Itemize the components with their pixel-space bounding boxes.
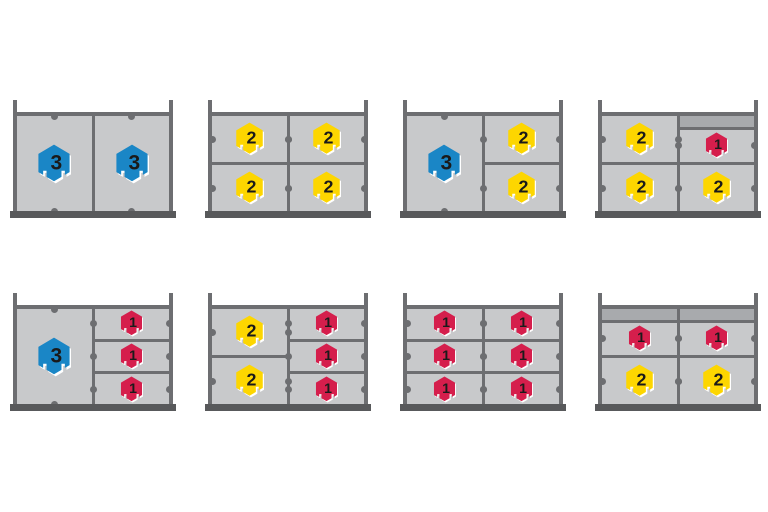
hex-token-icon: 1 (510, 310, 533, 337)
hex-token-icon: 3 (427, 144, 461, 184)
hex-token-icon: 1 (510, 343, 533, 370)
top-bar (403, 305, 563, 309)
token-number: 2 (246, 177, 256, 197)
hex-token-icon: 2 (507, 171, 536, 205)
token-red-1: 1 (510, 376, 533, 403)
token-yellow-2: 2 (702, 364, 731, 398)
token-red-1: 1 (315, 376, 338, 403)
peg (285, 185, 292, 192)
row-divider (680, 355, 755, 358)
shelf-six-red: 111111 (403, 293, 563, 411)
filler-band-line (602, 320, 677, 323)
top-bar (208, 305, 368, 309)
row-divider (290, 371, 365, 374)
hex-token-icon: 2 (235, 171, 264, 205)
token-number: 2 (636, 177, 646, 197)
token-yellow-2: 2 (507, 122, 536, 156)
token-yellow-2: 2 (312, 122, 341, 156)
token-yellow-2: 2 (625, 122, 654, 156)
token-number: 1 (442, 381, 450, 397)
shelf-two-tall-blue: 33 (13, 100, 173, 218)
hex-token-icon: 2 (312, 171, 341, 205)
token-blue-3: 3 (37, 337, 71, 377)
token-number: 2 (246, 321, 256, 341)
peg (285, 136, 292, 143)
shelf-blue-plus-three-red: 3111 (13, 293, 173, 411)
token-number: 2 (714, 370, 724, 390)
hex-token-icon: 2 (625, 171, 654, 205)
hex-token-icon: 1 (705, 325, 728, 352)
token-number: 1 (324, 381, 332, 397)
token-number: 3 (128, 151, 140, 174)
shelf-diagram: 33222232222123111221111111111212 (0, 0, 768, 512)
peg (285, 320, 292, 327)
peg (285, 353, 292, 360)
token-red-1: 1 (120, 310, 143, 337)
hex-token-icon: 2 (625, 364, 654, 398)
token-number: 1 (714, 330, 722, 346)
rail-right (364, 100, 368, 211)
token-red-1: 1 (510, 343, 533, 370)
peg (285, 386, 292, 393)
row-divider (290, 162, 365, 165)
token-number: 1 (519, 315, 527, 331)
hex-token-icon: 1 (433, 376, 456, 403)
top-bar (598, 112, 758, 116)
token-red-1: 1 (433, 343, 456, 370)
shelf-two-red-two-yellow: 1212 (598, 293, 758, 411)
token-number: 1 (129, 348, 137, 364)
token-red-1: 1 (315, 343, 338, 370)
column-divider (92, 116, 95, 211)
rail-left (13, 293, 17, 404)
hex-token-icon: 1 (120, 310, 143, 337)
token-number: 3 (51, 344, 63, 367)
hex-token-icon: 2 (702, 171, 731, 205)
token-red-1: 1 (120, 376, 143, 403)
row-divider (95, 371, 170, 374)
shelf-four-yellow: 2222 (208, 100, 368, 218)
top-bar (403, 112, 563, 116)
token-yellow-2: 2 (625, 171, 654, 205)
hex-token-icon: 1 (433, 310, 456, 337)
top-bar (13, 112, 173, 116)
rail-left (403, 293, 407, 404)
hex-token-icon: 3 (115, 144, 149, 184)
hex-token-icon: 2 (235, 122, 264, 156)
token-red-1: 1 (705, 132, 728, 159)
token-red-1: 1 (315, 310, 338, 337)
top-bar (208, 112, 368, 116)
token-number: 1 (324, 315, 332, 331)
token-number: 1 (637, 330, 645, 346)
peg (675, 142, 682, 149)
filler-band-line (680, 320, 755, 323)
token-yellow-2: 2 (312, 171, 341, 205)
token-yellow-2: 2 (235, 315, 264, 349)
token-number: 2 (636, 370, 646, 390)
rail-right (364, 293, 368, 404)
token-number: 1 (519, 381, 527, 397)
hex-token-icon: 3 (37, 144, 71, 184)
rail-left (208, 100, 212, 211)
peg (285, 329, 292, 336)
rail-right (754, 100, 758, 211)
token-red-1: 1 (120, 343, 143, 370)
peg (480, 386, 487, 393)
peg (90, 353, 97, 360)
filler-band (602, 309, 677, 320)
token-yellow-2: 2 (235, 171, 264, 205)
rail-right (559, 100, 563, 211)
filler-band-line (680, 127, 755, 130)
rail-left (403, 100, 407, 211)
row-divider (212, 355, 287, 358)
token-red-1: 1 (510, 310, 533, 337)
token-number: 1 (442, 348, 450, 364)
hex-token-icon: 3 (37, 337, 71, 377)
shelf-three-yellow-one-red: 2212 (598, 100, 758, 218)
rail-left (598, 293, 602, 404)
peg (675, 185, 682, 192)
peg (480, 320, 487, 327)
token-number: 2 (324, 177, 334, 197)
peg (285, 378, 292, 385)
token-number: 1 (129, 315, 137, 331)
peg (480, 185, 487, 192)
plinth (400, 404, 566, 411)
token-blue-3: 3 (115, 144, 149, 184)
token-number: 2 (246, 128, 256, 148)
hex-token-icon: 1 (120, 343, 143, 370)
token-red-1: 1 (433, 376, 456, 403)
row-divider (95, 339, 170, 342)
row-divider (485, 339, 560, 342)
row-divider (485, 371, 560, 374)
hex-token-icon: 1 (315, 310, 338, 337)
rail-left (598, 100, 602, 211)
token-yellow-2: 2 (625, 364, 654, 398)
hex-token-icon: 2 (235, 315, 264, 349)
hex-token-icon: 2 (702, 364, 731, 398)
token-red-1: 1 (628, 325, 651, 352)
plinth (10, 404, 176, 411)
token-number: 2 (519, 128, 529, 148)
token-number: 2 (324, 128, 334, 148)
rail-left (13, 100, 17, 211)
row-divider (407, 371, 482, 374)
hex-token-icon: 1 (628, 325, 651, 352)
plinth (595, 211, 761, 218)
row-divider (680, 162, 755, 165)
token-number: 2 (636, 128, 646, 148)
token-number: 2 (246, 370, 256, 390)
peg (675, 378, 682, 385)
token-number: 3 (441, 151, 453, 174)
token-number: 2 (519, 177, 529, 197)
token-yellow-2: 2 (507, 171, 536, 205)
plinth (205, 404, 371, 411)
hex-token-icon: 1 (510, 376, 533, 403)
rail-right (559, 293, 563, 404)
row-divider (485, 162, 560, 165)
rail-right (754, 293, 758, 404)
plinth (205, 211, 371, 218)
row-divider (212, 162, 287, 165)
hex-token-icon: 2 (625, 122, 654, 156)
token-yellow-2: 2 (235, 122, 264, 156)
top-bar (13, 305, 173, 309)
token-blue-3: 3 (37, 144, 71, 184)
peg (675, 335, 682, 342)
hex-token-icon: 2 (312, 122, 341, 156)
row-divider (407, 339, 482, 342)
shelf-blue-plus-two-yellow: 322 (403, 100, 563, 218)
filler-band (680, 309, 755, 320)
token-number: 1 (324, 348, 332, 364)
peg (480, 353, 487, 360)
rail-right (169, 293, 173, 404)
token-red-1: 1 (705, 325, 728, 352)
token-number: 1 (519, 348, 527, 364)
row-divider (602, 355, 677, 358)
token-number: 3 (51, 151, 63, 174)
rail-right (169, 100, 173, 211)
token-yellow-2: 2 (235, 364, 264, 398)
row-divider (602, 162, 677, 165)
hex-token-icon: 2 (235, 364, 264, 398)
peg (90, 320, 97, 327)
filler-band (680, 116, 755, 127)
token-blue-3: 3 (427, 144, 461, 184)
hex-token-icon: 1 (705, 132, 728, 159)
hex-token-icon: 1 (315, 343, 338, 370)
token-number: 1 (129, 381, 137, 397)
rail-left (208, 293, 212, 404)
token-number: 2 (714, 177, 724, 197)
hex-token-icon: 1 (315, 376, 338, 403)
row-divider (290, 339, 365, 342)
hex-token-icon: 2 (507, 122, 536, 156)
token-number: 1 (714, 137, 722, 153)
token-red-1: 1 (433, 310, 456, 337)
top-bar (598, 305, 758, 309)
shelf-two-yellow-three-red: 22111 (208, 293, 368, 411)
hex-token-icon: 1 (120, 376, 143, 403)
hex-token-icon: 1 (433, 343, 456, 370)
plinth (10, 211, 176, 218)
peg (90, 386, 97, 393)
plinth (595, 404, 761, 411)
peg (480, 136, 487, 143)
plinth (400, 211, 566, 218)
token-number: 1 (442, 315, 450, 331)
token-yellow-2: 2 (702, 171, 731, 205)
